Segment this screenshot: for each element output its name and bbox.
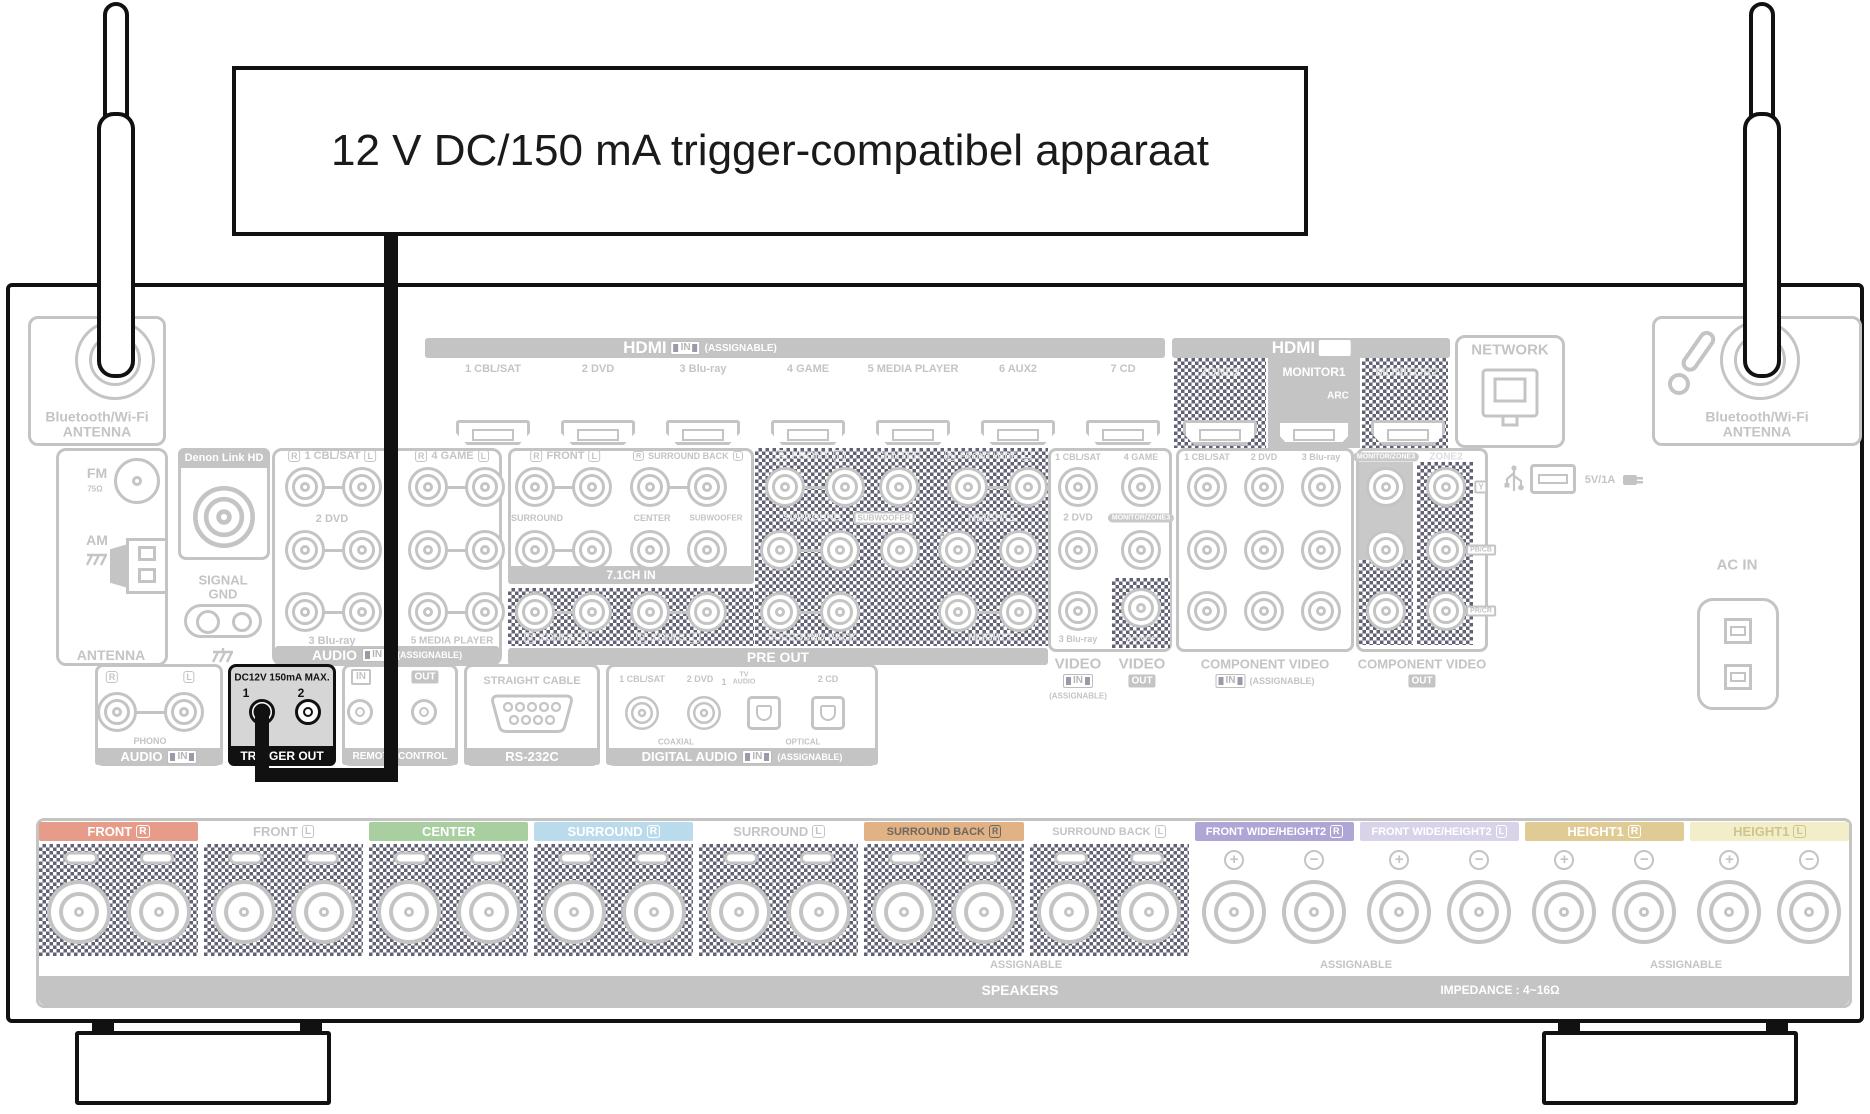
hdmi-in-label: 1 CBL/SAT bbox=[465, 363, 521, 375]
rca-jack bbox=[1187, 467, 1227, 507]
rca-jack bbox=[1426, 467, 1466, 507]
l-box: L bbox=[478, 450, 489, 462]
rca-jack bbox=[1187, 591, 1227, 631]
in-badge: IN bbox=[671, 341, 701, 355]
speaker-side-box: L bbox=[812, 825, 824, 839]
preout-front-label: R FRONT L bbox=[775, 450, 845, 462]
digital-opt2-label: 2 CD bbox=[818, 674, 839, 684]
component-out-banner: COMPONENT VIDEO bbox=[1358, 657, 1487, 672]
rca-jack bbox=[285, 530, 325, 570]
speaker-label: SURROUNDR bbox=[534, 822, 693, 841]
detachable-antenna-icon bbox=[1660, 328, 1734, 402]
rca-jack bbox=[687, 467, 727, 507]
power-plug-icon bbox=[1622, 472, 1648, 488]
in-badge: IN bbox=[167, 750, 197, 764]
rca-jack bbox=[465, 530, 505, 570]
rca-jack bbox=[999, 592, 1039, 632]
speaker-slot bbox=[965, 852, 999, 865]
speaker-channel-name: SURROUND bbox=[567, 824, 642, 839]
rs232-banner: RS-232C bbox=[464, 748, 600, 765]
speaker-label: SURROUNDL bbox=[699, 822, 858, 841]
optical-port-2 bbox=[811, 696, 845, 730]
in-badge: IN bbox=[742, 750, 772, 764]
speaker-slot bbox=[140, 852, 174, 865]
bt-antenna-right-label: Bluetooth/Wi-Fi ANTENNA bbox=[1705, 409, 1808, 438]
hdmi-out-port bbox=[1183, 420, 1257, 445]
plus-terminal-mark: + bbox=[1389, 850, 1409, 870]
component-in-col1-label: 1 CBL/SAT bbox=[1184, 452, 1230, 462]
remote-in-badge: IN bbox=[351, 669, 371, 685]
hdmi-out-zone2-label: ZONE2 bbox=[1200, 365, 1240, 379]
speaker-slot bbox=[394, 852, 428, 865]
hdmi-in-label: 6 AUX2 bbox=[999, 363, 1037, 375]
speaker-channel-name: HEIGHT1 bbox=[1733, 824, 1789, 839]
speaker-side-box: R bbox=[136, 825, 150, 839]
l-box: L bbox=[577, 632, 588, 643]
speaker-side-box: L bbox=[1496, 825, 1507, 837]
rca-jack bbox=[1058, 591, 1098, 631]
preout-subwoofer-label: SUBWOOFER bbox=[854, 512, 915, 525]
bt-right-line1: Bluetooth/Wi-Fi bbox=[1705, 409, 1808, 424]
audio-banner-text: AUDIO bbox=[312, 647, 357, 663]
preout-frontwide-label: R FRONT WIDE L bbox=[945, 451, 1032, 461]
digital-in1-label: 1 CBL/SAT bbox=[619, 674, 665, 684]
l-box: L bbox=[733, 451, 743, 461]
gnd-screw2 bbox=[232, 612, 252, 632]
hdmi-in-label: 2 DVD bbox=[582, 363, 614, 375]
preout-zone2-label: R ZONE2 L bbox=[524, 632, 588, 643]
rca-jack bbox=[1426, 530, 1466, 570]
binding-post bbox=[1202, 880, 1266, 944]
rca-jack bbox=[938, 592, 978, 632]
component-out-badge: OUT bbox=[1408, 675, 1435, 688]
rca-jack bbox=[342, 530, 382, 570]
gnd-screw bbox=[196, 610, 220, 634]
trigger-out-banner: TRIGGER OUT bbox=[228, 746, 336, 766]
video-in1-label: 1 CBL/SAT bbox=[1055, 452, 1101, 462]
rca-jack bbox=[408, 530, 448, 570]
component-pr-badge: PR/CR bbox=[1466, 606, 1496, 617]
hdmi-out-port bbox=[1371, 420, 1445, 445]
rca-jack bbox=[630, 467, 670, 507]
digital-audio-banner: DIGITAL AUDIO IN (ASSIGNABLE) bbox=[606, 748, 878, 765]
binding-post bbox=[1697, 880, 1761, 944]
binding-post bbox=[1367, 880, 1431, 944]
rca-jack bbox=[572, 592, 612, 632]
assignable-label-3: ASSIGNABLE bbox=[1650, 959, 1722, 971]
rca-jack bbox=[408, 467, 448, 507]
rca-jack bbox=[1244, 591, 1284, 631]
speaker-label: CENTER bbox=[369, 822, 528, 841]
speaker-slot bbox=[635, 852, 669, 865]
remote-out-jack bbox=[411, 699, 437, 725]
hdmi-in-port bbox=[456, 420, 530, 445]
bt-right-line2: ANTENNA bbox=[1705, 424, 1808, 439]
speaker-slot bbox=[1054, 852, 1088, 865]
rca-jack bbox=[515, 592, 555, 632]
phono-l-label: L bbox=[183, 671, 194, 683]
rs232-port bbox=[489, 693, 575, 735]
r-box: R bbox=[530, 450, 542, 462]
rca-jack bbox=[765, 467, 805, 507]
am-terminal-hole2 bbox=[138, 568, 156, 583]
right-antenna-rod bbox=[1743, 112, 1781, 378]
ac-in-label: AC IN bbox=[1717, 557, 1758, 574]
speaker-channel-name: SURROUND bbox=[733, 824, 808, 839]
video-zone2-label: ZONE2 bbox=[1126, 634, 1156, 644]
speaker-slot bbox=[305, 852, 339, 865]
hdmi-in-port bbox=[771, 420, 845, 445]
hdmi-in-label: 4 GAME bbox=[787, 363, 829, 375]
video-out-banner: VIDEO bbox=[1119, 656, 1166, 673]
hdmi-in-label: 7 CD bbox=[1110, 363, 1135, 375]
trigger-plug bbox=[254, 704, 271, 721]
minus-terminal-mark: − bbox=[1304, 850, 1324, 870]
video-monitor-zone3-badge: MONITOR/ZONE3 bbox=[1108, 514, 1174, 523]
ac-inlet bbox=[1697, 598, 1779, 710]
binding-post bbox=[127, 880, 191, 944]
component-in-col2-label: 2 DVD bbox=[1251, 452, 1278, 462]
rca-jack bbox=[1244, 467, 1284, 507]
rca-jack bbox=[1301, 467, 1341, 507]
speaker-label: SURROUND BACKR bbox=[864, 822, 1023, 841]
rca-jack bbox=[342, 467, 382, 507]
binding-post bbox=[542, 880, 606, 944]
remote-out-badge: OUT bbox=[411, 671, 438, 684]
component-y-badge: Y bbox=[1474, 481, 1487, 494]
audio-in3-label: 3 Blu-ray bbox=[308, 635, 355, 647]
hdmi-in-label: 5 MEDIA PLAYER bbox=[868, 363, 959, 375]
binding-post bbox=[952, 880, 1016, 944]
preout-banner: PRE OUT bbox=[508, 648, 1048, 665]
fm-label: FM bbox=[87, 465, 107, 481]
remote-in-jack bbox=[347, 699, 373, 725]
r-box: R bbox=[633, 451, 644, 461]
video-in-badge: IN bbox=[1063, 674, 1093, 688]
speaker-slot bbox=[724, 852, 758, 865]
ch71-sback-label: R SURROUND BACK L bbox=[633, 451, 743, 461]
rca-jack bbox=[1366, 591, 1406, 631]
right-foot bbox=[1542, 1031, 1798, 1105]
binding-post bbox=[47, 880, 111, 944]
video-in-assignable: (ASSIGNABLE) bbox=[1049, 692, 1107, 701]
hdmi-out-port bbox=[1277, 420, 1351, 445]
minus-terminal-mark: − bbox=[1634, 850, 1654, 870]
phono-r-label: R bbox=[106, 671, 118, 683]
phono-label: PHONO bbox=[133, 736, 166, 746]
l-box: L bbox=[588, 450, 599, 462]
video-out-badge: OUT bbox=[1128, 675, 1155, 688]
bt-left-line2: ANTENNA bbox=[45, 424, 148, 439]
rca-jack bbox=[572, 467, 612, 507]
rca-jack bbox=[572, 530, 612, 570]
trigger-jack-2 bbox=[295, 699, 321, 725]
trigger-cable-vertical bbox=[384, 234, 398, 780]
speaker-label: FRONTR bbox=[39, 822, 198, 841]
am-terminal-hole1 bbox=[138, 546, 156, 561]
binding-post bbox=[787, 880, 851, 944]
rs232-note: STRAIGHT CABLE bbox=[483, 675, 580, 687]
speaker-label: FRONTL bbox=[204, 822, 363, 841]
video-in2-label: 2 DVD bbox=[1063, 513, 1092, 524]
l-box: L bbox=[833, 450, 844, 462]
ch71-surround-label: SURROUND bbox=[511, 513, 563, 523]
trigger-jack2-number: 2 bbox=[298, 686, 305, 700]
l-box: L bbox=[689, 632, 700, 643]
trigger-rating-label: DC12V 150mA MAX. bbox=[234, 673, 329, 684]
out-badge: OUT bbox=[1319, 340, 1350, 356]
binding-post bbox=[1612, 880, 1676, 944]
impedance-label: IMPEDANCE : 4~16Ω bbox=[1440, 983, 1559, 997]
component-in-banner: COMPONENT VIDEO bbox=[1201, 657, 1330, 672]
binding-post bbox=[377, 880, 441, 944]
audio-in2-label: 2 DVD bbox=[316, 513, 348, 525]
rca-jack bbox=[630, 592, 670, 632]
binding-post bbox=[872, 880, 936, 944]
rca-jack bbox=[1121, 530, 1161, 570]
hdmi-in-title: HDMI IN (ASSIGNABLE) bbox=[623, 338, 777, 358]
speaker-channel-name: SURROUND BACK bbox=[887, 826, 985, 838]
speaker-label: HEIGHT1R bbox=[1525, 822, 1684, 841]
denon-link-header: Denon Link HD bbox=[178, 448, 270, 468]
am-ground-icon bbox=[84, 552, 110, 574]
l-box: L bbox=[1021, 451, 1031, 461]
rca-jack bbox=[97, 692, 137, 732]
binding-post bbox=[1037, 880, 1101, 944]
speakers-banner-label: SPEAKERS bbox=[981, 982, 1058, 998]
rca-jack bbox=[408, 592, 448, 632]
rca-jack bbox=[285, 592, 325, 632]
speaker-slot bbox=[559, 852, 593, 865]
rca-jack bbox=[515, 530, 555, 570]
preout-height1-label: HEIGHT1 bbox=[968, 512, 1016, 524]
hdmi-in-label: 3 Blu-ray bbox=[679, 363, 726, 375]
assignable-label-2: ASSIGNABLE bbox=[1320, 959, 1392, 971]
audio-assignable: (ASSIGNABLE) bbox=[397, 650, 462, 660]
am-label: AM bbox=[86, 532, 108, 548]
preout-surround-label: SURROUND bbox=[783, 513, 841, 524]
rca-jack bbox=[1058, 530, 1098, 570]
rca-jack bbox=[1366, 467, 1406, 507]
r-box: R bbox=[636, 632, 648, 643]
binding-post bbox=[457, 880, 521, 944]
rca-jack bbox=[948, 467, 988, 507]
ch71-center-label: CENTER bbox=[633, 513, 670, 523]
r-box: R bbox=[524, 632, 536, 643]
component-out-monitor-badge: MONITOR/ZONE3 bbox=[1353, 453, 1419, 462]
rca-jack bbox=[1244, 530, 1284, 570]
usb-icon bbox=[1502, 464, 1526, 494]
hdmi-out-monitor1-label: MONITOR1 bbox=[1282, 365, 1345, 379]
speaker-slot bbox=[800, 852, 834, 865]
rca-jack bbox=[999, 530, 1039, 570]
component-in-col3-label: 3 Blu-ray bbox=[1302, 452, 1341, 462]
speaker-side-box: L bbox=[1793, 825, 1805, 839]
ch71-subwoofer-label: SUBWOOFER bbox=[690, 514, 743, 523]
rca-jack bbox=[342, 592, 382, 632]
digital-opt1-label: TV AUDIO bbox=[733, 672, 756, 687]
plus-terminal-mark: + bbox=[1224, 850, 1244, 870]
hdmi-out-title: HDMI OUT bbox=[1272, 338, 1351, 358]
component-in-badge: IN (ASSIGNABLE) bbox=[1216, 674, 1315, 688]
rca-jack bbox=[760, 530, 800, 570]
assignable-label-1: ASSIGNABLE bbox=[990, 959, 1062, 971]
speaker-slot bbox=[889, 852, 923, 865]
rca-jack bbox=[164, 692, 204, 732]
coaxial-jack-2 bbox=[687, 696, 721, 730]
hdmi-in-banner bbox=[425, 338, 1165, 358]
remote-banner: REMOTE CONTROL bbox=[342, 748, 458, 765]
rca-jack bbox=[630, 530, 670, 570]
speaker-side-box: R bbox=[1330, 825, 1342, 837]
hdmi-out-arc-label: ARC bbox=[1327, 391, 1349, 402]
video-in4-label: 4 GAME bbox=[1124, 452, 1159, 462]
rca-jack bbox=[760, 592, 800, 632]
speaker-side-box: R bbox=[647, 825, 661, 839]
binding-post bbox=[212, 880, 276, 944]
component-pb-badge: PB/CB bbox=[1466, 545, 1496, 556]
binding-post bbox=[707, 880, 771, 944]
optical-label: OPTICAL bbox=[785, 738, 820, 747]
rca-jack bbox=[465, 467, 505, 507]
signal-gnd-label: SIGNAL GND bbox=[198, 573, 247, 600]
rca-jack bbox=[820, 592, 860, 632]
rca-jack bbox=[1301, 530, 1341, 570]
signal-gnd-line1: SIGNAL bbox=[198, 573, 247, 587]
minus-terminal-mark: − bbox=[1799, 850, 1819, 870]
digital-in2-label: 2 DVD bbox=[687, 674, 714, 684]
callout-box: 12 V DC/150 mA trigger-compatibel appara… bbox=[232, 66, 1308, 236]
r-box: R bbox=[775, 450, 787, 462]
speaker-label: HEIGHT1L bbox=[1690, 822, 1849, 841]
minus-terminal-mark: − bbox=[1469, 850, 1489, 870]
speaker-channel-name: CENTER bbox=[422, 824, 475, 839]
coaxial-label: COAXIAL bbox=[658, 738, 694, 747]
signal-gnd-line2: GND bbox=[198, 587, 247, 601]
plus-terminal-mark: + bbox=[1719, 850, 1739, 870]
denon-link-jack bbox=[193, 486, 255, 548]
hdmi-in-port bbox=[561, 420, 635, 445]
speaker-side-box: L bbox=[1155, 825, 1166, 837]
l-box: L bbox=[365, 450, 376, 462]
audio-in5-label: 5 MEDIA PLAYER bbox=[411, 636, 494, 647]
speaker-slot bbox=[470, 852, 504, 865]
antenna-banner: ANTENNA bbox=[77, 647, 145, 663]
left-foot bbox=[75, 1031, 331, 1105]
preout-zone3-label: R ZONE3 L bbox=[636, 632, 700, 643]
fm-antenna-jack bbox=[114, 458, 160, 504]
rca-jack bbox=[825, 467, 865, 507]
speaker-side-box: R bbox=[989, 825, 1001, 837]
speaker-channel-name: FRONT WIDE/HEIGHT2 bbox=[1371, 826, 1491, 838]
preout-sback-label: SURROUND BACK bbox=[767, 633, 856, 644]
ac-inlet-slot2 bbox=[1724, 664, 1752, 690]
rca-jack bbox=[1121, 467, 1161, 507]
speaker-label: SURROUND BACKL bbox=[1030, 822, 1189, 841]
ethernet-port bbox=[1479, 366, 1541, 432]
usb-port-bar bbox=[1538, 474, 1568, 484]
trigger-cable-horizontal bbox=[255, 768, 398, 782]
preout-center-label: CENTER bbox=[876, 450, 921, 462]
speaker-slot bbox=[1130, 852, 1164, 865]
callout-label: 12 V DC/150 mA trigger-compatibel appara… bbox=[331, 126, 1209, 176]
rca-jack bbox=[820, 530, 860, 570]
digital-opt1-number: 1 bbox=[721, 677, 726, 687]
bt-antenna-left-label: Bluetooth/Wi-Fi ANTENNA bbox=[45, 409, 148, 438]
binding-post bbox=[1532, 880, 1596, 944]
hdmi-in-title-text: HDMI bbox=[623, 338, 666, 358]
hdmi-in-port bbox=[666, 420, 740, 445]
video-in3-label: 3 Blu-ray bbox=[1059, 634, 1098, 644]
binding-post bbox=[622, 880, 686, 944]
rca-jack bbox=[687, 530, 727, 570]
rca-jack bbox=[515, 467, 555, 507]
component-out-zone2-label: ZONE2 bbox=[1429, 452, 1462, 463]
hdmi-out-title-text: HDMI bbox=[1272, 338, 1315, 358]
bt-left-line1: Bluetooth/Wi-Fi bbox=[45, 409, 148, 424]
r-box: R bbox=[288, 450, 300, 462]
hdmi-out-monitor2-label: MONITOR2 bbox=[1375, 365, 1438, 379]
preout-height2-label: HEIGHT2 bbox=[968, 633, 1011, 644]
speaker-channel-name: FRONT WIDE/HEIGHT2 bbox=[1206, 826, 1326, 838]
binding-post bbox=[1282, 880, 1346, 944]
ch71-banner: 7.1CH IN bbox=[508, 566, 754, 584]
audio-in1-label: R 1 CBL/SAT L bbox=[288, 450, 376, 462]
speaker-side-box: R bbox=[1628, 825, 1642, 839]
network-label: NETWORK bbox=[1471, 342, 1549, 359]
rca-jack bbox=[1187, 530, 1227, 570]
speaker-slot bbox=[229, 852, 263, 865]
left-antenna-rod bbox=[97, 112, 135, 378]
speakers-banner bbox=[39, 976, 1849, 1005]
hdmi-in-port bbox=[981, 420, 1055, 445]
r-box: R bbox=[415, 450, 427, 462]
preout-sub1-label: 1 bbox=[881, 527, 887, 538]
hdmi-in-port bbox=[876, 420, 950, 445]
rca-jack bbox=[1121, 588, 1161, 628]
coaxial-jack-1 bbox=[625, 696, 659, 730]
rca-jack bbox=[1426, 591, 1466, 631]
phono-banner: AUDIO IN bbox=[95, 748, 223, 765]
video-in-banner: VIDEO bbox=[1055, 656, 1102, 673]
speaker-channel-name: HEIGHT1 bbox=[1567, 824, 1623, 839]
r-box: R bbox=[945, 451, 956, 461]
ac-inlet-slot1 bbox=[1724, 618, 1752, 644]
rca-jack bbox=[285, 467, 325, 507]
speaker-channel-name: SURROUND BACK bbox=[1052, 826, 1150, 838]
binding-post bbox=[1117, 880, 1181, 944]
rca-jack bbox=[687, 592, 727, 632]
speaker-label: FRONT WIDE/HEIGHT2L bbox=[1360, 822, 1519, 841]
rca-jack bbox=[465, 592, 505, 632]
trigger-jack1-number: 1 bbox=[243, 686, 250, 700]
speaker-side-box: L bbox=[302, 825, 314, 839]
speaker-label: FRONT WIDE/HEIGHT2R bbox=[1195, 822, 1354, 841]
trigger-cable-jack-lead bbox=[255, 712, 269, 778]
hdmi-in-port bbox=[1086, 420, 1160, 445]
binding-post bbox=[1447, 880, 1511, 944]
speaker-channel-name: FRONT bbox=[253, 824, 298, 839]
fm-ohm-label: 75Ω bbox=[87, 485, 102, 494]
speaker-channel-name: FRONT bbox=[87, 824, 132, 839]
plus-terminal-mark: + bbox=[1554, 850, 1574, 870]
preout-sub2-label: 2 bbox=[939, 527, 945, 538]
ch71-front-label: R FRONT L bbox=[530, 450, 600, 462]
binding-post bbox=[292, 880, 356, 944]
speaker-slot bbox=[64, 852, 98, 865]
rca-jack bbox=[879, 467, 919, 507]
rca-jack bbox=[1058, 467, 1098, 507]
